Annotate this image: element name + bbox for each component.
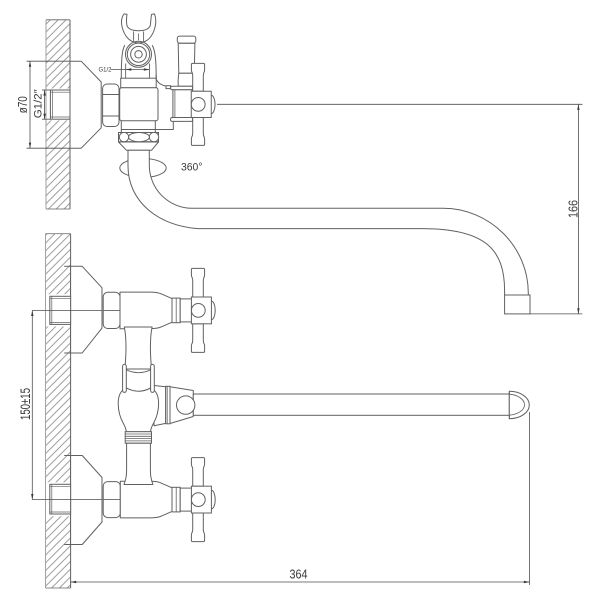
svg-text:ø70: ø70 bbox=[15, 96, 30, 113]
svg-text:360°: 360° bbox=[181, 162, 203, 174]
svg-text:364: 364 bbox=[290, 568, 308, 582]
svg-text:G1/2″: G1/2″ bbox=[33, 89, 45, 118]
svg-text:166: 166 bbox=[565, 200, 580, 218]
svg-text:G1/2: G1/2 bbox=[98, 68, 112, 74]
svg-text:150±15: 150±15 bbox=[18, 388, 33, 420]
